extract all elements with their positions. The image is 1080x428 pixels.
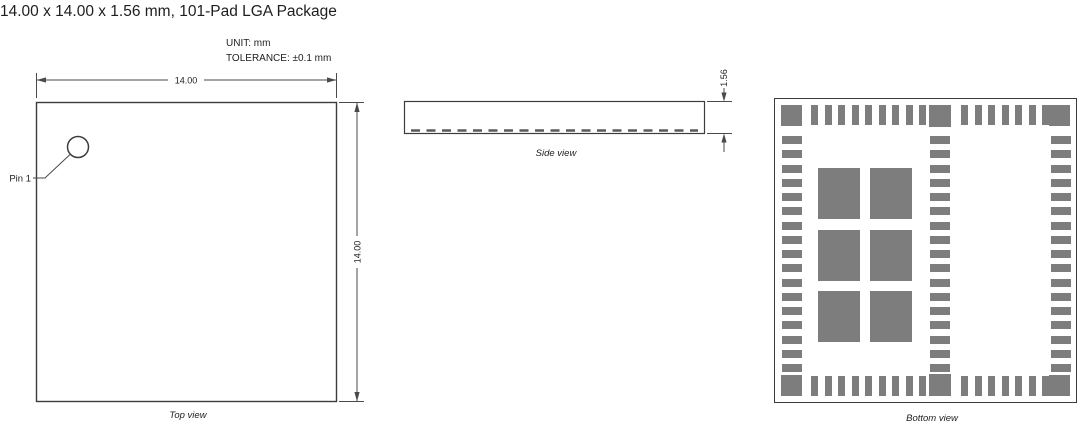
edge-pad-bottom: [1015, 376, 1022, 396]
edge-pad-top: [879, 105, 886, 125]
column-pad: [1051, 136, 1071, 144]
corner-pad-pin1: [781, 375, 802, 396]
edge-pad-top: [961, 105, 968, 125]
column-pad: [782, 236, 802, 244]
large-center-pad: [818, 230, 860, 281]
column-pad: [782, 336, 802, 344]
column-pad: [930, 150, 950, 158]
column-pad: [1051, 150, 1071, 158]
column-pad: [782, 207, 802, 215]
column-pad: [782, 136, 802, 144]
edge-pad-top: [1042, 105, 1049, 125]
column-pad: [1051, 279, 1071, 287]
column-pad: [930, 264, 950, 272]
top-view: Pin 1 14.00 14.00 Top vie: [9, 73, 364, 421]
edge-pad-bottom: [825, 376, 832, 396]
large-center-pad: [870, 168, 912, 219]
edge-pad-bottom: [811, 376, 818, 396]
column-pad: [1051, 236, 1071, 244]
column-pad: [782, 350, 802, 358]
edge-pad-top: [825, 105, 832, 125]
top-view-body: [37, 103, 337, 402]
edge-pad-top: [1029, 105, 1036, 125]
pin1-leader-line: [33, 155, 70, 179]
column-pad: [782, 165, 802, 173]
edge-pad-bottom: [879, 376, 886, 396]
edge-pad-top: [811, 105, 818, 125]
column-pad: [1051, 293, 1071, 301]
column-pad: [1051, 207, 1071, 215]
unit-note: UNIT: mm: [226, 38, 270, 49]
edge-pad-bottom: [892, 376, 899, 396]
column-pad: [782, 307, 802, 315]
column-pad: [782, 179, 802, 187]
column-pad: [1051, 364, 1071, 372]
edge-center-pad-top: [929, 105, 951, 127]
column-pad: [930, 336, 950, 344]
side-view-thickness-dimension: 1.56: [707, 69, 732, 152]
edge-pad-top: [838, 105, 845, 125]
column-pad: [930, 364, 950, 372]
edge-pad-top: [988, 105, 995, 125]
column-pad: [930, 307, 950, 315]
column-pad: [1051, 250, 1071, 258]
column-pad: [1051, 193, 1071, 201]
side-view-body: [405, 102, 705, 134]
column-pad: [930, 207, 950, 215]
column-pad: [782, 264, 802, 272]
large-center-pad: [818, 168, 860, 219]
column-pad: [930, 136, 950, 144]
column-pad: [782, 293, 802, 301]
top-view-width-value: 14.00: [175, 76, 198, 86]
column-pad: [1051, 321, 1071, 329]
edge-pad-bottom: [852, 376, 859, 396]
edge-pad-bottom: [961, 376, 968, 396]
column-pad: [1051, 336, 1071, 344]
edge-pad-top: [1002, 105, 1009, 125]
column-pad: [782, 150, 802, 158]
column-pad: [1051, 165, 1071, 173]
page-title: 14.00 x 14.00 x 1.56 mm, 101-Pad LGA Pac…: [0, 3, 337, 20]
column-pad: [930, 279, 950, 287]
column-pad: [930, 222, 950, 230]
edge-pad-bottom: [838, 376, 845, 396]
edge-pad-bottom: [975, 376, 982, 396]
column-pad: [1051, 222, 1071, 230]
edge-pad-top: [892, 105, 899, 125]
bottom-view-caption: Bottom view: [906, 413, 959, 424]
column-pad: [930, 236, 950, 244]
corner-pad-bottom-right: [1049, 375, 1070, 396]
column-pad: [1051, 307, 1071, 315]
edge-pad-bottom: [906, 376, 913, 396]
edge-pad-bottom: [988, 376, 995, 396]
column-pad: [1051, 179, 1071, 187]
column-pad: [930, 293, 950, 301]
column-pad: [1051, 264, 1071, 272]
column-pad: [930, 179, 950, 187]
top-view-height-value: 14.00: [353, 241, 363, 264]
large-center-pad: [870, 230, 912, 281]
top-view-height-dimension: 14.00: [339, 103, 364, 402]
column-pad: [930, 193, 950, 201]
edge-pad-top: [852, 105, 859, 125]
corner-pad-top-right: [1049, 105, 1070, 126]
column-pad: [782, 193, 802, 201]
edge-pad-bottom: [1042, 376, 1049, 396]
edge-pad-top: [1015, 105, 1022, 125]
column-pad: [1051, 350, 1071, 358]
edge-pad-top: [975, 105, 982, 125]
pin1-marker-circle: [68, 137, 89, 158]
side-view: 1.56 Side view: [405, 69, 733, 159]
top-view-caption: Top view: [169, 410, 207, 421]
edge-pad-top: [906, 105, 913, 125]
top-view-width-dimension: 14.00: [37, 73, 337, 98]
column-pad: [930, 350, 950, 358]
column-pad: [930, 321, 950, 329]
edge-pad-bottom: [865, 376, 872, 396]
edge-pad-bottom: [919, 376, 926, 396]
side-view-thickness-value: 1.56: [719, 69, 729, 87]
lga-package-drawing: 14.00 x 14.00 x 1.56 mm, 101-Pad LGA Pac…: [0, 0, 1080, 428]
column-pad: [782, 279, 802, 287]
column-pad: [782, 250, 802, 258]
bottom-view-pad-field: [775, 99, 1076, 402]
bottom-view-body: [774, 98, 1077, 403]
large-center-pad: [818, 291, 860, 342]
edge-pad-top: [919, 105, 926, 125]
tolerance-note: TOLERANCE: ±0.1 mm: [226, 53, 331, 64]
edge-pad-top: [865, 105, 872, 125]
edge-pad-bottom: [1029, 376, 1036, 396]
edge-center-pad-bottom: [929, 374, 951, 396]
edge-pad-bottom: [1002, 376, 1009, 396]
column-pad: [782, 364, 802, 372]
column-pad: [930, 165, 950, 173]
corner-pad-top-left: [781, 105, 802, 126]
large-center-pad: [870, 291, 912, 342]
column-pad: [782, 222, 802, 230]
column-pad: [782, 321, 802, 329]
side-view-caption: Side view: [536, 148, 578, 159]
column-pad: [930, 250, 950, 258]
pin1-label-top-view: Pin 1: [9, 174, 31, 185]
